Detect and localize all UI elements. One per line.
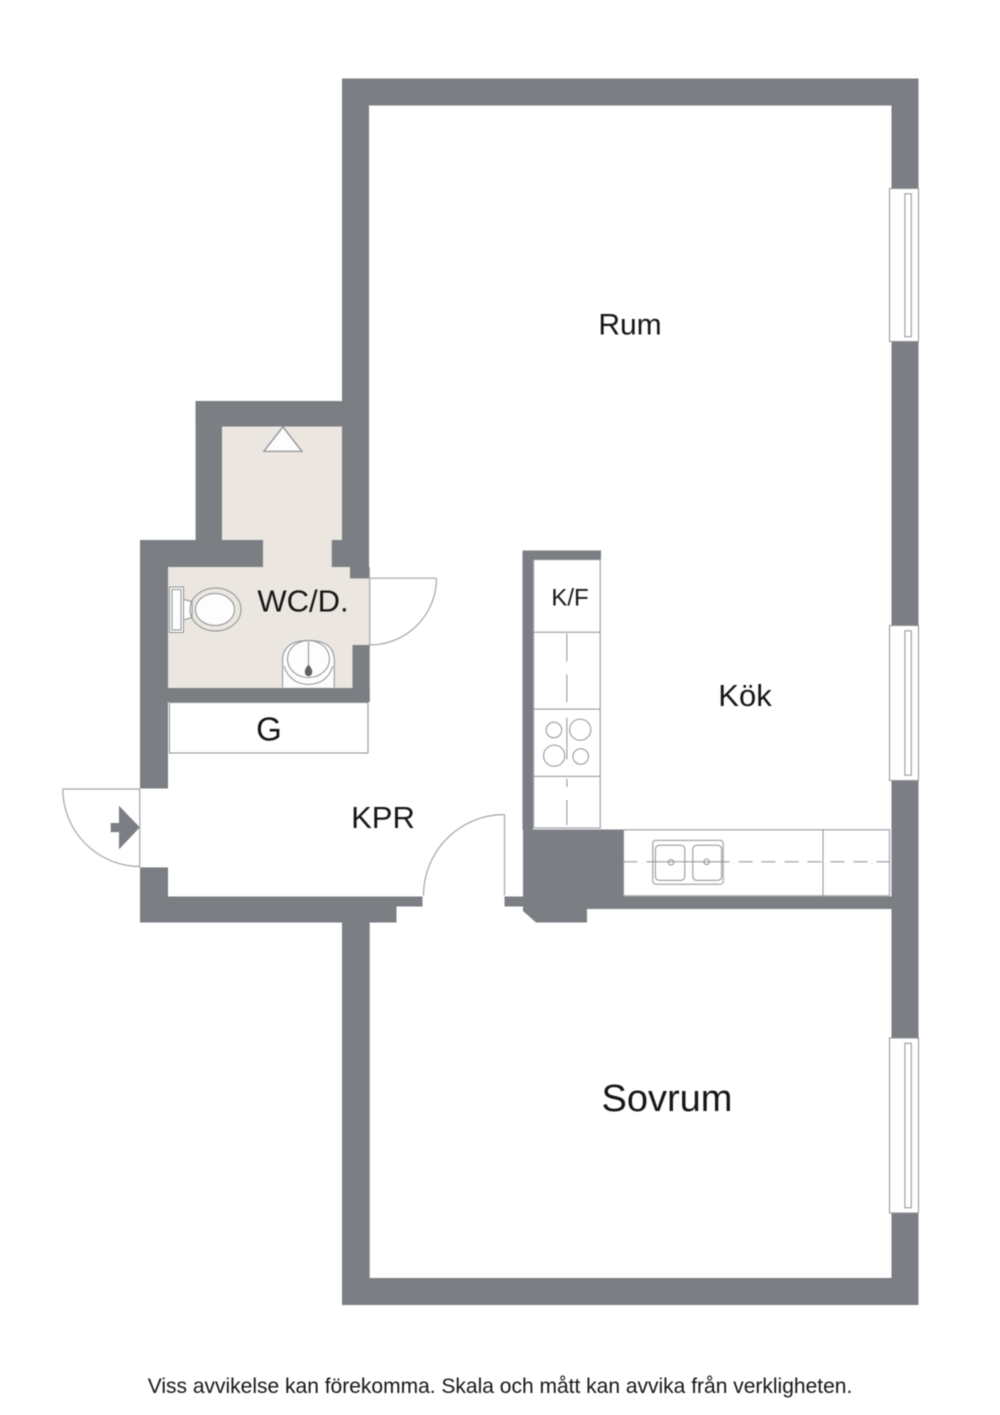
- svg-text:Viss avvikelse kan förekomma.: Viss avvikelse kan förekomma. Skala och …: [148, 1375, 853, 1398]
- svg-text:KPR: KPR: [351, 800, 415, 835]
- svg-text:G: G: [256, 711, 282, 748]
- svg-text:WC/D.: WC/D.: [257, 584, 348, 619]
- svg-text:Kök: Kök: [718, 678, 772, 713]
- svg-text:Sovrum: Sovrum: [602, 1078, 733, 1120]
- svg-text:K/F: K/F: [551, 584, 588, 611]
- svg-text:Rum: Rum: [598, 308, 661, 341]
